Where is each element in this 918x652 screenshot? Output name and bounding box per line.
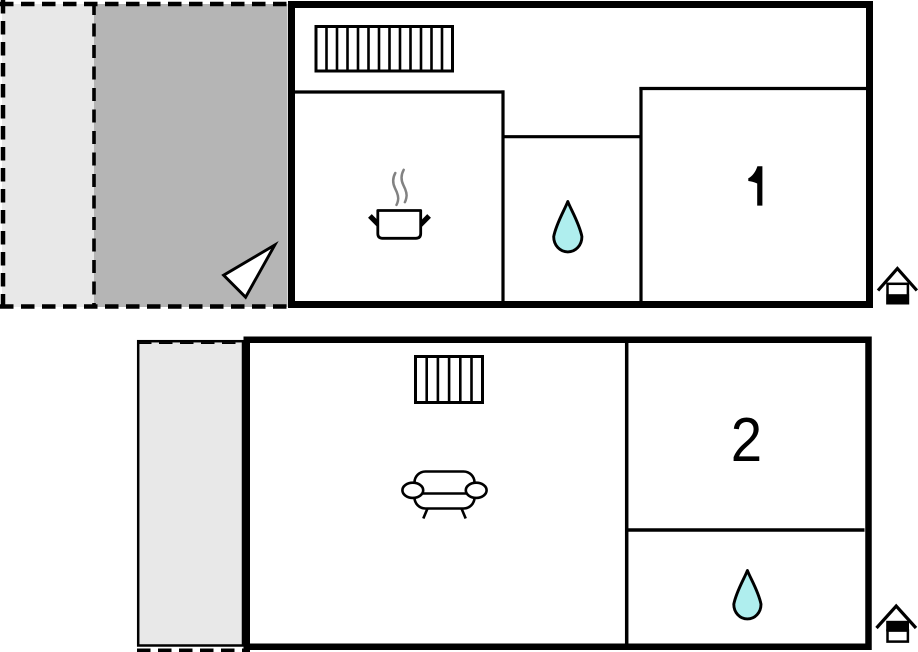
svg-text:2: 2 xyxy=(731,405,762,475)
